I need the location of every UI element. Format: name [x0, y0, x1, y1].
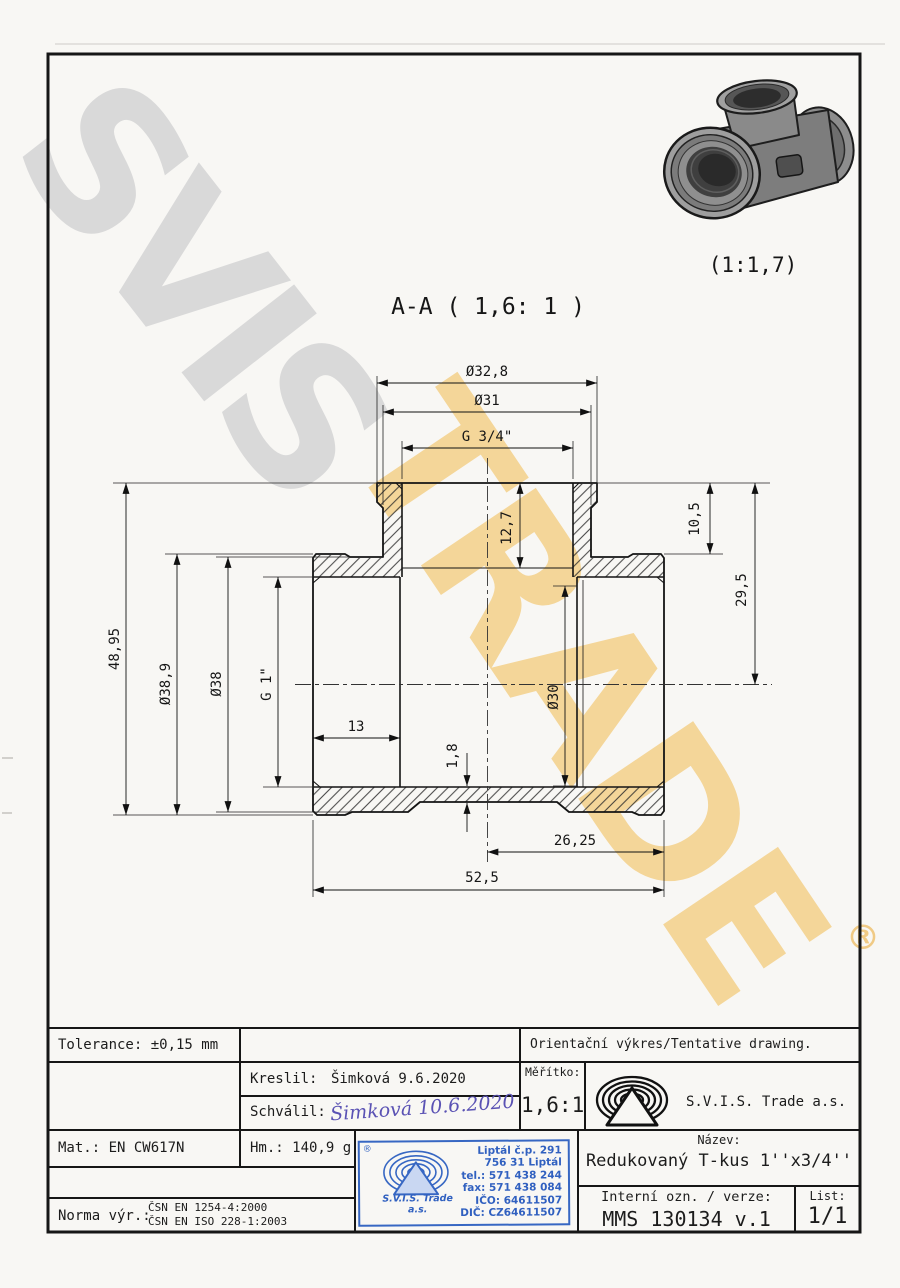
stamp-company-line2: a.s.: [370, 1205, 465, 1215]
list-value: 1/1: [795, 1204, 860, 1229]
scanned-technical-drawing: SVIS TRADE ®: [0, 0, 900, 1288]
mass-field: Hm.: 140,9 g: [250, 1140, 351, 1156]
schvalil-label: Schválil:: [250, 1104, 326, 1120]
stamp-line: fax: 571 438 084: [460, 1182, 562, 1195]
stamp-company-line1: S.V.I.S. Trade: [370, 1194, 465, 1204]
interni-label: Interní ozn. / verze:: [578, 1190, 795, 1206]
meritko-value: 1,6:1: [521, 1093, 583, 1117]
interni-value: MMS 130134 v.1: [578, 1208, 795, 1231]
tolerance-field: Tolerance: ±0,15 mm: [58, 1037, 218, 1053]
kreslil-value: Šimková 9.6.2020: [331, 1071, 466, 1087]
stamp-line: 756 31 Liptál: [460, 1157, 562, 1170]
norma-line2: ČSN EN ISO 228-1:2003: [148, 1216, 287, 1229]
kreslil-label: Kreslil:: [250, 1071, 317, 1087]
company-name: S.V.I.S. Trade a.s.: [686, 1094, 846, 1110]
stamp-address: Liptál č.p. 291 756 31 Liptál tel.: 571 …: [460, 1144, 562, 1219]
tentative-drawing-note: Orientační výkres/Tentative drawing.: [530, 1038, 812, 1053]
norma-line1: ČSN EN 1254-4:2000: [148, 1202, 267, 1215]
stamp-line: Liptál č.p. 291: [460, 1144, 562, 1157]
stamp-logo-icon: [366, 1146, 466, 1199]
stamp-line: IČO: 64611507: [460, 1194, 562, 1207]
schvalil-signature: Šimková 10.6.2020: [329, 1092, 515, 1127]
nazev-label: Název:: [578, 1134, 860, 1148]
stamp-line: tel.: 571 438 244: [460, 1169, 562, 1182]
meritko-label: Měřítko:: [525, 1066, 580, 1079]
titleblock-text-layer: Tolerance: ±0,15 mm Orientační výkres/Te…: [0, 0, 900, 1288]
company-stamp: ® S.V.I.S. Trade a.s. Liptál č.p. 291 75…: [358, 1139, 571, 1226]
material-field: Mat.: EN CW617N: [58, 1140, 184, 1156]
list-label: List:: [795, 1190, 860, 1204]
norma-label: Norma výr.:: [58, 1208, 151, 1224]
nazev-value: Redukovaný T-kus 1''x3/4'': [578, 1152, 860, 1172]
stamp-line: DIČ: CZ64611507: [460, 1206, 562, 1219]
